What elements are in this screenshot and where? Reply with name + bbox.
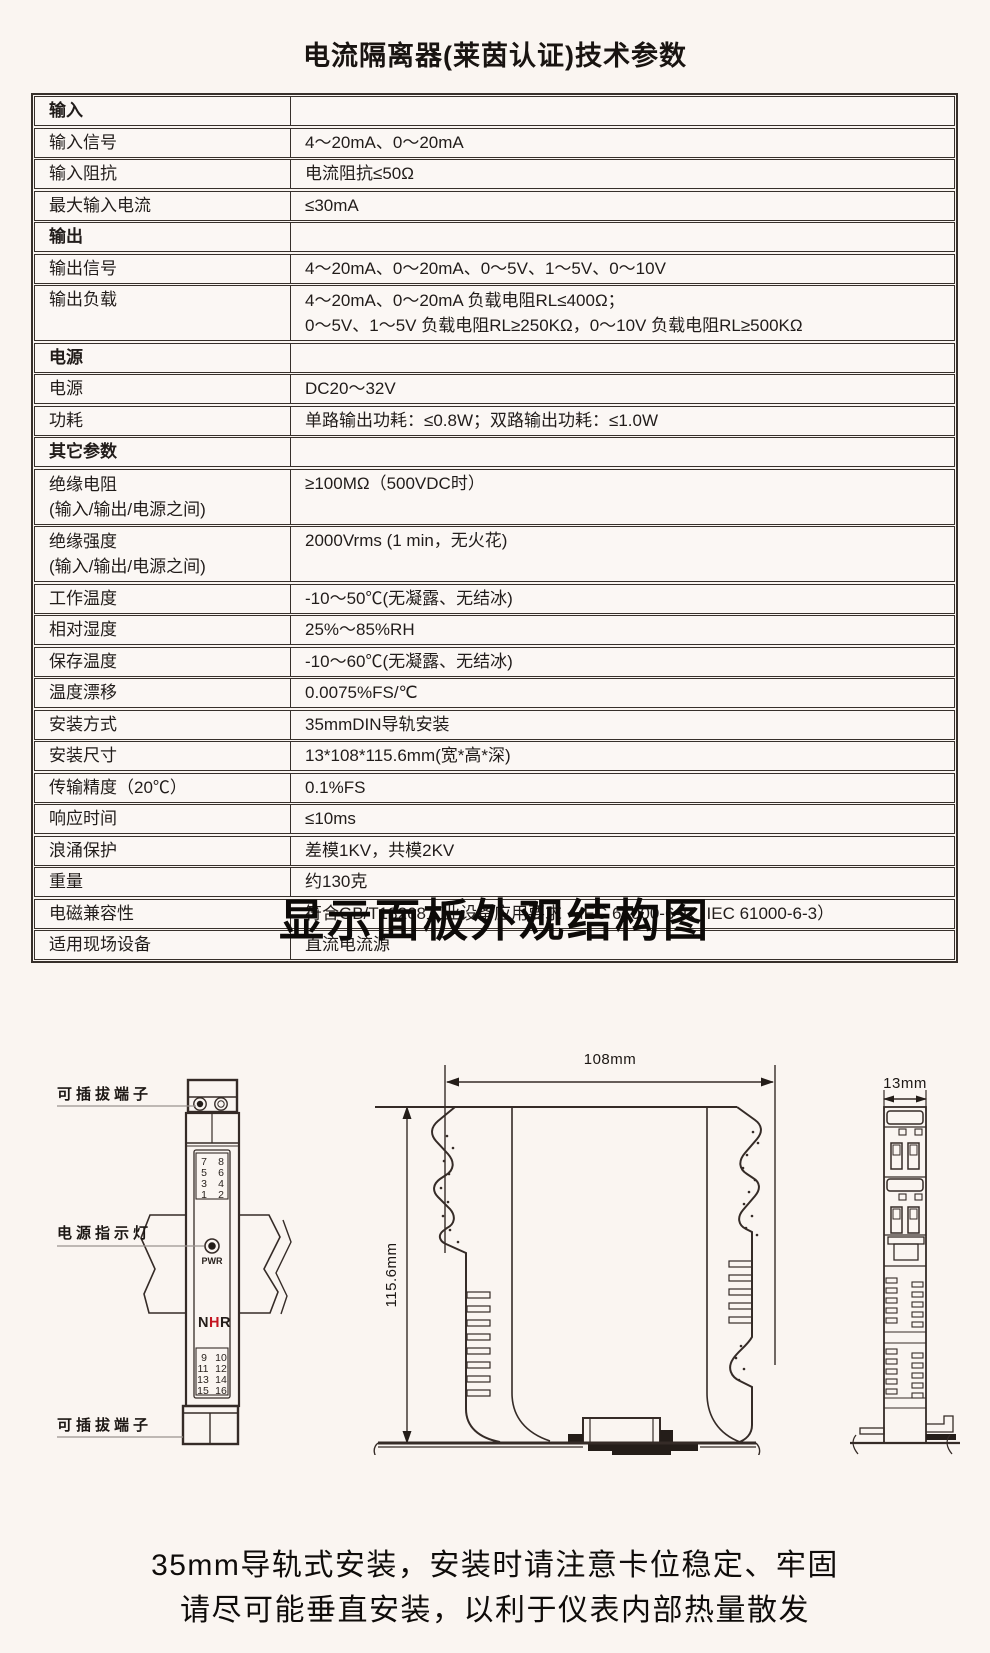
cell-line: (输入/输出/电源之间) bbox=[49, 554, 286, 579]
brand-letter: R bbox=[220, 1315, 231, 1331]
param-label: 输出 bbox=[35, 223, 291, 251]
param-value: 13*108*115.6mm(宽*高*深) bbox=[291, 742, 954, 770]
param-label: 安装尺寸 bbox=[35, 742, 291, 770]
top-view: 13mm bbox=[850, 1075, 960, 1454]
table-row: 其它参数 bbox=[34, 437, 955, 467]
terminal-number: 16 bbox=[215, 1385, 227, 1397]
param-label: 温度漂移 bbox=[35, 679, 291, 707]
param-value: 35mmDIN导轨安装 bbox=[291, 711, 954, 739]
label-top-terminal: 可插拔端子 bbox=[57, 1085, 152, 1103]
label-power-led: 电源指示灯 bbox=[57, 1224, 152, 1242]
dim-width-label: 108mm bbox=[584, 1051, 637, 1068]
param-value: 0.1%FS bbox=[291, 774, 954, 802]
param-value: -10～50℃(无凝露、无结冰) bbox=[291, 585, 954, 613]
param-label: 工作温度 bbox=[35, 585, 291, 613]
cell-line: 绝缘电阻 bbox=[49, 472, 286, 497]
param-label: 功耗 bbox=[35, 407, 291, 435]
param-label: 输入阻抗 bbox=[35, 160, 291, 188]
front-view: 7 8 5 6 3 4 1 2 PWR NHR 9 bbox=[57, 1080, 291, 1444]
param-label: 其它参数 bbox=[35, 438, 291, 466]
brand-letter: H bbox=[209, 1315, 220, 1331]
param-value: 4～20mA、0～20mA bbox=[291, 129, 954, 157]
spec-table-body: 输入 输入信号 4～20mA、0～20mA 输入阻抗 电流阻抗≤50Ω 最大输入… bbox=[34, 96, 955, 960]
param-value bbox=[291, 438, 954, 466]
top-terminal-block bbox=[188, 1080, 237, 1112]
spec-table: 输入 输入信号 4～20mA、0～20mA 输入阻抗 电流阻抗≤50Ω 最大输入… bbox=[31, 93, 958, 963]
table-row: 电源 bbox=[34, 343, 955, 373]
bottom-terminal-block bbox=[183, 1406, 238, 1444]
table-row: 输入信号 4～20mA、0～20mA bbox=[34, 128, 955, 158]
table-row: 工作温度 -10～50℃(无凝露、无结冰) bbox=[34, 584, 955, 614]
cell-line: 绝缘强度 bbox=[49, 529, 286, 554]
param-label: 输出信号 bbox=[35, 255, 291, 283]
table-row: 输出负载 4～20mA、0～20mA 负载电阻RL≤400Ω；0～5V、1～5V… bbox=[34, 285, 955, 341]
installation-note-line: 请尽可能垂直安装，以利于仪表内部热量散发 bbox=[0, 1588, 990, 1633]
dim-arrow-width: 108mm bbox=[445, 1051, 775, 1365]
structure-title: 显示面板外观结构图 bbox=[0, 884, 990, 949]
din-slider bbox=[888, 1237, 924, 1260]
param-value bbox=[291, 97, 954, 125]
vent-slots bbox=[467, 1261, 752, 1396]
cell-line: 0～5V、1～5V 负载电阻RL≥250KΩ，0～10V 负载电阻RL≥500K… bbox=[305, 313, 948, 338]
pwr-label: PWR bbox=[202, 1256, 223, 1266]
vent-slots-top-view bbox=[884, 1278, 926, 1398]
table-row: 绝缘强度(输入/输出/电源之间) 2000Vrms (1 min，无火花) bbox=[34, 526, 955, 582]
param-label: 输入信号 bbox=[35, 129, 291, 157]
param-value: -10～60℃(无凝露、无结冰) bbox=[291, 648, 954, 676]
installation-note-line: 35mm导轨式安装，安装时请注意卡位稳定、牢固 bbox=[0, 1543, 990, 1588]
table-row: 绝缘电阻(输入/输出/电源之间) ≥100MΩ（500VDC时） bbox=[34, 469, 955, 525]
table-row: 安装方式 35mmDIN导轨安装 bbox=[34, 710, 955, 740]
page-title: 电流隔离器(莱茵认证)技术参数 bbox=[0, 34, 990, 73]
table-row: 保存温度 -10～60℃(无凝露、无结冰) bbox=[34, 647, 955, 677]
dim-height-label: 115.6mm bbox=[383, 1243, 400, 1308]
terminal-number: 15 bbox=[197, 1385, 209, 1397]
terminal-numbers-top: 7 8 5 6 3 4 1 2 bbox=[196, 1153, 228, 1201]
terminal-number: 1 bbox=[201, 1189, 207, 1201]
param-value: 25%～85%RH bbox=[291, 616, 954, 644]
outline-structure-drawing: 7 8 5 6 3 4 1 2 PWR NHR 9 bbox=[0, 985, 990, 1455]
param-value: 4～20mA、0～20mA 负载电阻RL≤400Ω；0～5V、1～5V 负载电阻… bbox=[291, 286, 954, 340]
param-value: 电流阻抗≤50Ω bbox=[291, 160, 954, 188]
table-row: 输入 bbox=[34, 96, 955, 126]
dim-arrow-depth: 13mm bbox=[883, 1075, 927, 1111]
terminal-numbers-bottom: 9 10 11 12 13 14 15 16 bbox=[196, 1348, 228, 1397]
table-row: 响应时间 ≤10ms bbox=[34, 804, 955, 834]
pwr-led-icon bbox=[205, 1239, 219, 1253]
param-label: 相对湿度 bbox=[35, 616, 291, 644]
param-value bbox=[291, 223, 954, 251]
cell-line: (输入/输出/电源之间) bbox=[49, 497, 286, 522]
param-label: 传输精度（20℃） bbox=[35, 774, 291, 802]
param-value: 单路输出功耗：≤0.8W；双路输出功耗：≤1.0W bbox=[291, 407, 954, 435]
screw-icon bbox=[215, 1098, 227, 1110]
cell-line: 4～20mA、0～20mA 负载电阻RL≤400Ω； bbox=[305, 288, 948, 313]
param-label: 安装方式 bbox=[35, 711, 291, 739]
table-row: 输入阻抗 电流阻抗≤50Ω bbox=[34, 159, 955, 189]
param-value: 0.0075%FS/℃ bbox=[291, 679, 954, 707]
table-row: 输出信号 4～20mA、0～20mA、0～5V、1～5V、0～10V bbox=[34, 254, 955, 284]
table-row: 相对湿度 25%～85%RH bbox=[34, 615, 955, 645]
side-view: 108mm 115.6mm bbox=[374, 1051, 775, 1455]
installation-note: 35mm导轨式安装，安装时请注意卡位稳定、牢固 请尽可能垂直安装，以利于仪表内部… bbox=[0, 1543, 990, 1633]
param-value: 4～20mA、0～20mA、0～5V、1～5V、0～10V bbox=[291, 255, 954, 283]
param-label: 电源 bbox=[35, 344, 291, 372]
param-value: DC20～32V bbox=[291, 375, 954, 403]
param-value: 2000Vrms (1 min，无火花) bbox=[291, 527, 954, 581]
param-label: 输入 bbox=[35, 97, 291, 125]
dim-arrow-height: 115.6mm bbox=[383, 1106, 412, 1444]
param-value: ≥100MΩ（500VDC时） bbox=[291, 470, 954, 524]
param-value: ≤10ms bbox=[291, 805, 954, 833]
table-row: 电源 DC20～32V bbox=[34, 374, 955, 404]
table-row: 安装尺寸 13*108*115.6mm(宽*高*深) bbox=[34, 741, 955, 771]
param-label: 电源 bbox=[35, 375, 291, 403]
param-value: 差模1KV，共模2KV bbox=[291, 837, 954, 865]
param-label: 最大输入电流 bbox=[35, 192, 291, 220]
texture-dots bbox=[440, 1131, 760, 1382]
label-bottom-terminal: 可插拔端子 bbox=[57, 1416, 152, 1434]
brand-logo: NHR bbox=[198, 1315, 231, 1331]
dim-depth-label: 13mm bbox=[883, 1075, 927, 1092]
table-row: 温度漂移 0.0075%FS/℃ bbox=[34, 678, 955, 708]
terminal-number: 2 bbox=[218, 1189, 224, 1201]
table-row: 传输精度（20℃） 0.1%FS bbox=[34, 773, 955, 803]
param-label: 保存温度 bbox=[35, 648, 291, 676]
brand-letter: N bbox=[198, 1315, 209, 1331]
table-row: 输出 bbox=[34, 222, 955, 252]
param-value bbox=[291, 344, 954, 372]
param-label: 输出负载 bbox=[35, 286, 291, 340]
datasheet-page: 电流隔离器(莱茵认证)技术参数 输入 输入信号 4～20mA、0～20mA 输入… bbox=[0, 0, 990, 1653]
param-label: 绝缘强度(输入/输出/电源之间) bbox=[35, 527, 291, 581]
din-clip bbox=[568, 1418, 698, 1455]
param-label: 绝缘电阻(输入/输出/电源之间) bbox=[35, 470, 291, 524]
param-value: ≤30mA bbox=[291, 192, 954, 220]
param-label: 浪涌保护 bbox=[35, 837, 291, 865]
table-row: 浪涌保护 差模1KV，共模2KV bbox=[34, 836, 955, 866]
table-row: 功耗 单路输出功耗：≤0.8W；双路输出功耗：≤1.0W bbox=[34, 406, 955, 436]
table-row: 最大输入电流 ≤30mA bbox=[34, 191, 955, 221]
param-label: 响应时间 bbox=[35, 805, 291, 833]
